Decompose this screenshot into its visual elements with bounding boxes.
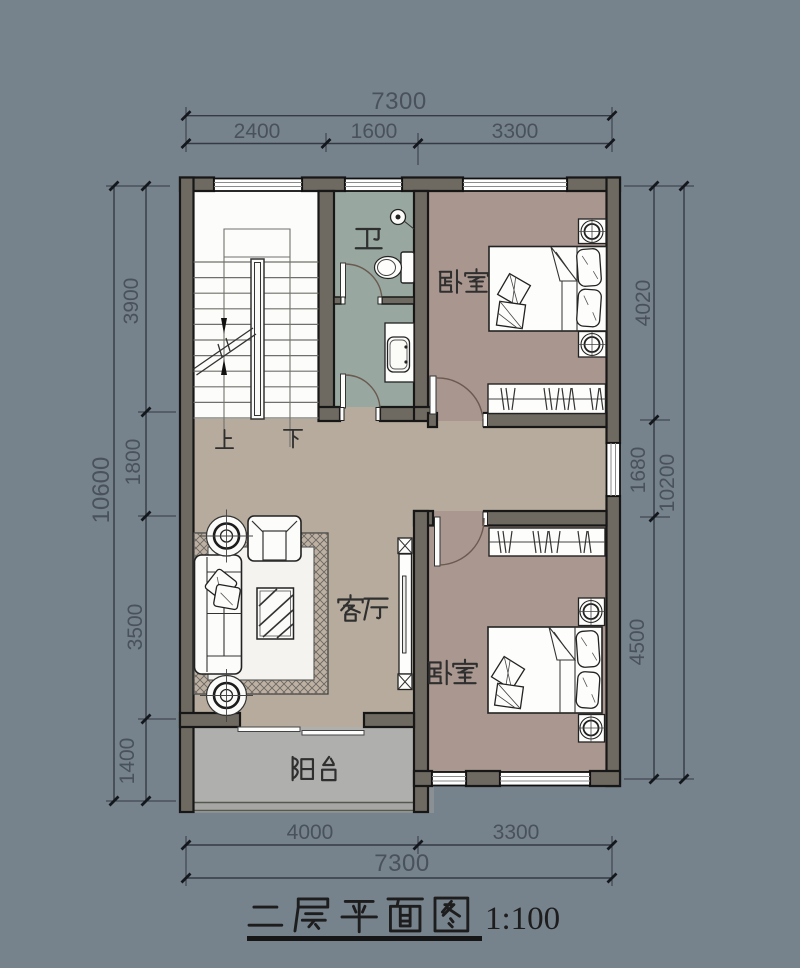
svg-text:1680: 1680 [627, 447, 650, 494]
svg-text:1400: 1400 [116, 738, 139, 785]
svg-text:4020: 4020 [632, 280, 655, 327]
svg-text:7300: 7300 [371, 88, 426, 115]
svg-text:1:100: 1:100 [485, 901, 560, 937]
svg-text:4500: 4500 [626, 619, 649, 666]
svg-text:1600: 1600 [351, 120, 398, 143]
svg-text:10600: 10600 [88, 457, 115, 524]
svg-text:1800: 1800 [122, 439, 145, 486]
svg-text:4000: 4000 [287, 821, 334, 844]
svg-text:3900: 3900 [120, 278, 143, 325]
svg-text:3500: 3500 [124, 604, 147, 651]
svg-text:3300: 3300 [493, 821, 540, 844]
svg-text:10200: 10200 [656, 454, 679, 512]
svg-text:2400: 2400 [234, 120, 281, 143]
svg-text:3300: 3300 [492, 120, 539, 143]
svg-text:7300: 7300 [374, 850, 429, 877]
